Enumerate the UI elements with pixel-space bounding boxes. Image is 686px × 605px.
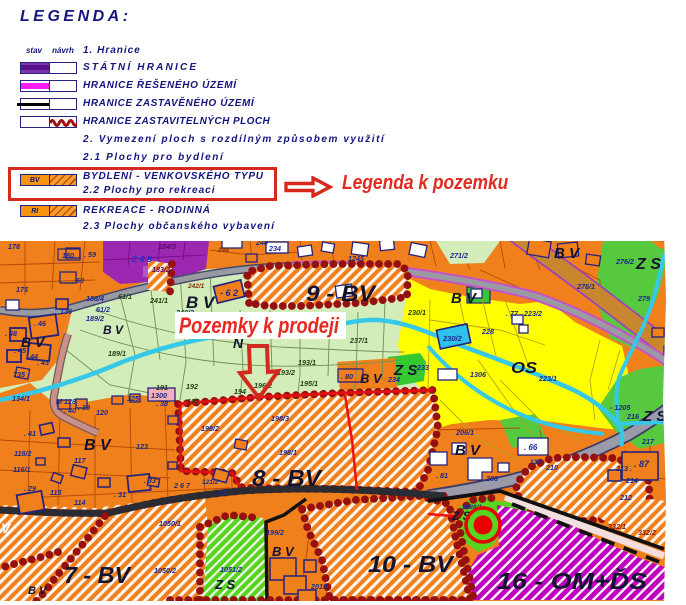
svg-text:B V: B V [455, 442, 482, 459]
svg-text:332/2: 332/2 [638, 528, 656, 537]
svg-text:B V: B V [28, 585, 48, 597]
svg-text:2010: 2010 [310, 582, 327, 591]
svg-text:M 128: M 128 [56, 397, 76, 406]
svg-text:7 - BV: 7 - BV [64, 562, 132, 588]
svg-text:2 6 7: 2 6 7 [173, 481, 191, 490]
svg-text:Z S: Z S [214, 577, 236, 592]
svg-text:193/1: 193/1 [298, 358, 316, 367]
svg-text:214: 214 [625, 476, 638, 485]
svg-text:123: 123 [136, 442, 148, 451]
svg-text:. 81: . 81 [436, 471, 448, 480]
svg-text:116/1: 116/1 [13, 465, 30, 474]
svg-text:271/2: 271/2 [449, 251, 468, 260]
svg-text:223/1: 223/1 [538, 374, 557, 383]
svg-text:1306: 1306 [470, 370, 487, 379]
svg-text:208: 208 [485, 474, 498, 483]
svg-text:B V: B V [186, 293, 216, 312]
svg-text:189/1: 189/1 [108, 349, 126, 358]
svg-text:. 31: . 31 [114, 490, 126, 499]
svg-text:. 34: . 34 [214, 488, 226, 497]
svg-text:. 77: . 77 [506, 309, 519, 318]
svg-text:61/2: 61/2 [96, 305, 110, 314]
svg-text:230/2: 230/2 [442, 334, 463, 343]
svg-text:189/2: 189/2 [86, 314, 104, 323]
svg-text:. 46: . 46 [34, 319, 47, 328]
svg-text:121/2: 121/2 [202, 479, 219, 486]
svg-text:735: 735 [13, 370, 26, 379]
svg-text:276/2: 276/2 [615, 257, 634, 266]
svg-text:175: 175 [16, 285, 29, 294]
svg-text:. 80: . 80 [341, 372, 353, 381]
svg-text:B V: B V [84, 437, 112, 454]
svg-text:192: 192 [186, 382, 198, 391]
svg-text:- 1205: - 1205 [610, 403, 631, 412]
svg-text:180: 180 [62, 251, 74, 260]
svg-text:230/1: 230/1 [407, 308, 426, 317]
svg-text:B V: B V [272, 544, 295, 559]
svg-text:. 60: . 60 [72, 276, 84, 285]
svg-text:276/1: 276/1 [576, 282, 595, 291]
svg-text:125: 125 [127, 394, 140, 403]
svg-text:198/2: 198/2 [201, 424, 219, 433]
svg-text:210: 210 [545, 463, 558, 472]
svg-text:178: 178 [8, 242, 20, 251]
svg-text:130: 130 [530, 459, 541, 466]
svg-text:OS: OS [511, 360, 537, 377]
svg-text:228: 228 [481, 327, 494, 336]
svg-text:118/2: 118/2 [14, 449, 31, 458]
svg-text:195/1: 195/1 [300, 379, 318, 388]
svg-text:- 6 2: - 6 2 [220, 288, 238, 298]
svg-text:. 38: . 38 [156, 399, 168, 408]
svg-text:242/1: 242/1 [187, 283, 205, 290]
svg-text:199/2: 199/2 [266, 528, 284, 537]
svg-text:16 - OM+ĎS: 16 - OM+ĎS [497, 567, 648, 594]
svg-text:216: 216 [626, 412, 640, 421]
svg-text:198/1: 198/1 [279, 448, 297, 457]
svg-text:248: 248 [217, 247, 229, 254]
svg-text:Z S: Z S [635, 256, 661, 273]
svg-text:223/2: 223/2 [523, 309, 542, 318]
svg-text:184/3: 184/3 [158, 242, 176, 251]
svg-text:332/1: 332/1 [608, 522, 626, 531]
svg-text:2 4 8: 2 4 8 [131, 254, 152, 264]
svg-text:197: 197 [187, 397, 200, 406]
svg-text:1050/2: 1050/2 [154, 566, 176, 575]
svg-text:1050/1: 1050/1 [159, 519, 181, 528]
svg-text:213 .: 213 . [615, 464, 632, 473]
svg-text:. 41: . 41 [24, 429, 36, 438]
svg-text:240: 240 [255, 241, 268, 247]
svg-text:B V: B V [451, 290, 478, 307]
svg-text:B V: B V [103, 323, 124, 337]
svg-text:. 43: . 43 [37, 358, 49, 367]
svg-text:61/1: 61/1 [118, 292, 132, 301]
svg-text:212: 212 [619, 493, 632, 502]
svg-text:206/1: 206/1 [455, 428, 474, 437]
svg-text:237/1: 237/1 [349, 336, 368, 345]
svg-text:188/4: 188/4 [86, 294, 104, 303]
svg-text:234: 234 [268, 244, 281, 253]
svg-text:10 - BV: 10 - BV [368, 551, 455, 577]
svg-text:1245: 1245 [348, 254, 365, 263]
svg-text:. 39: . 39 [78, 403, 90, 412]
svg-text:. 59: . 59 [84, 250, 96, 259]
svg-text:1051/2: 1051/2 [220, 565, 242, 574]
svg-text:233: 233 [416, 363, 429, 372]
svg-text:194: 194 [234, 387, 246, 396]
svg-text:117: 117 [74, 456, 86, 465]
svg-text:. 87: . 87 [634, 459, 650, 469]
svg-text:198/3: 198/3 [271, 414, 289, 423]
svg-text:115: 115 [50, 488, 62, 497]
svg-text:234: 234 [387, 375, 400, 384]
svg-text:134/1: 134/1 [12, 394, 30, 403]
svg-text:136: 136 [60, 307, 73, 316]
svg-text:120: 120 [96, 408, 108, 417]
svg-text:114: 114 [74, 498, 85, 507]
svg-text:B V: B V [554, 245, 581, 262]
svg-text:183/2: 183/2 [152, 265, 170, 274]
svg-text:279: 279 [637, 294, 650, 303]
svg-text:241/1: 241/1 [149, 296, 168, 305]
svg-text:. 66: . 66 [524, 443, 538, 452]
svg-text:. 33: . 33 [144, 476, 156, 485]
svg-text:9 - BV: 9 - BV [306, 281, 378, 306]
svg-text:217: 217 [641, 437, 655, 446]
svg-text:. 29: . 29 [24, 484, 36, 493]
svg-text:Z S: Z S [642, 408, 666, 425]
svg-text:8 - BV: 8 - BV [252, 465, 323, 491]
svg-text:Pozemky k prodeji: Pozemky k prodeji [179, 313, 340, 338]
svg-text:. 40: . 40 [64, 406, 76, 415]
svg-text:. 48: . 48 [5, 329, 17, 338]
